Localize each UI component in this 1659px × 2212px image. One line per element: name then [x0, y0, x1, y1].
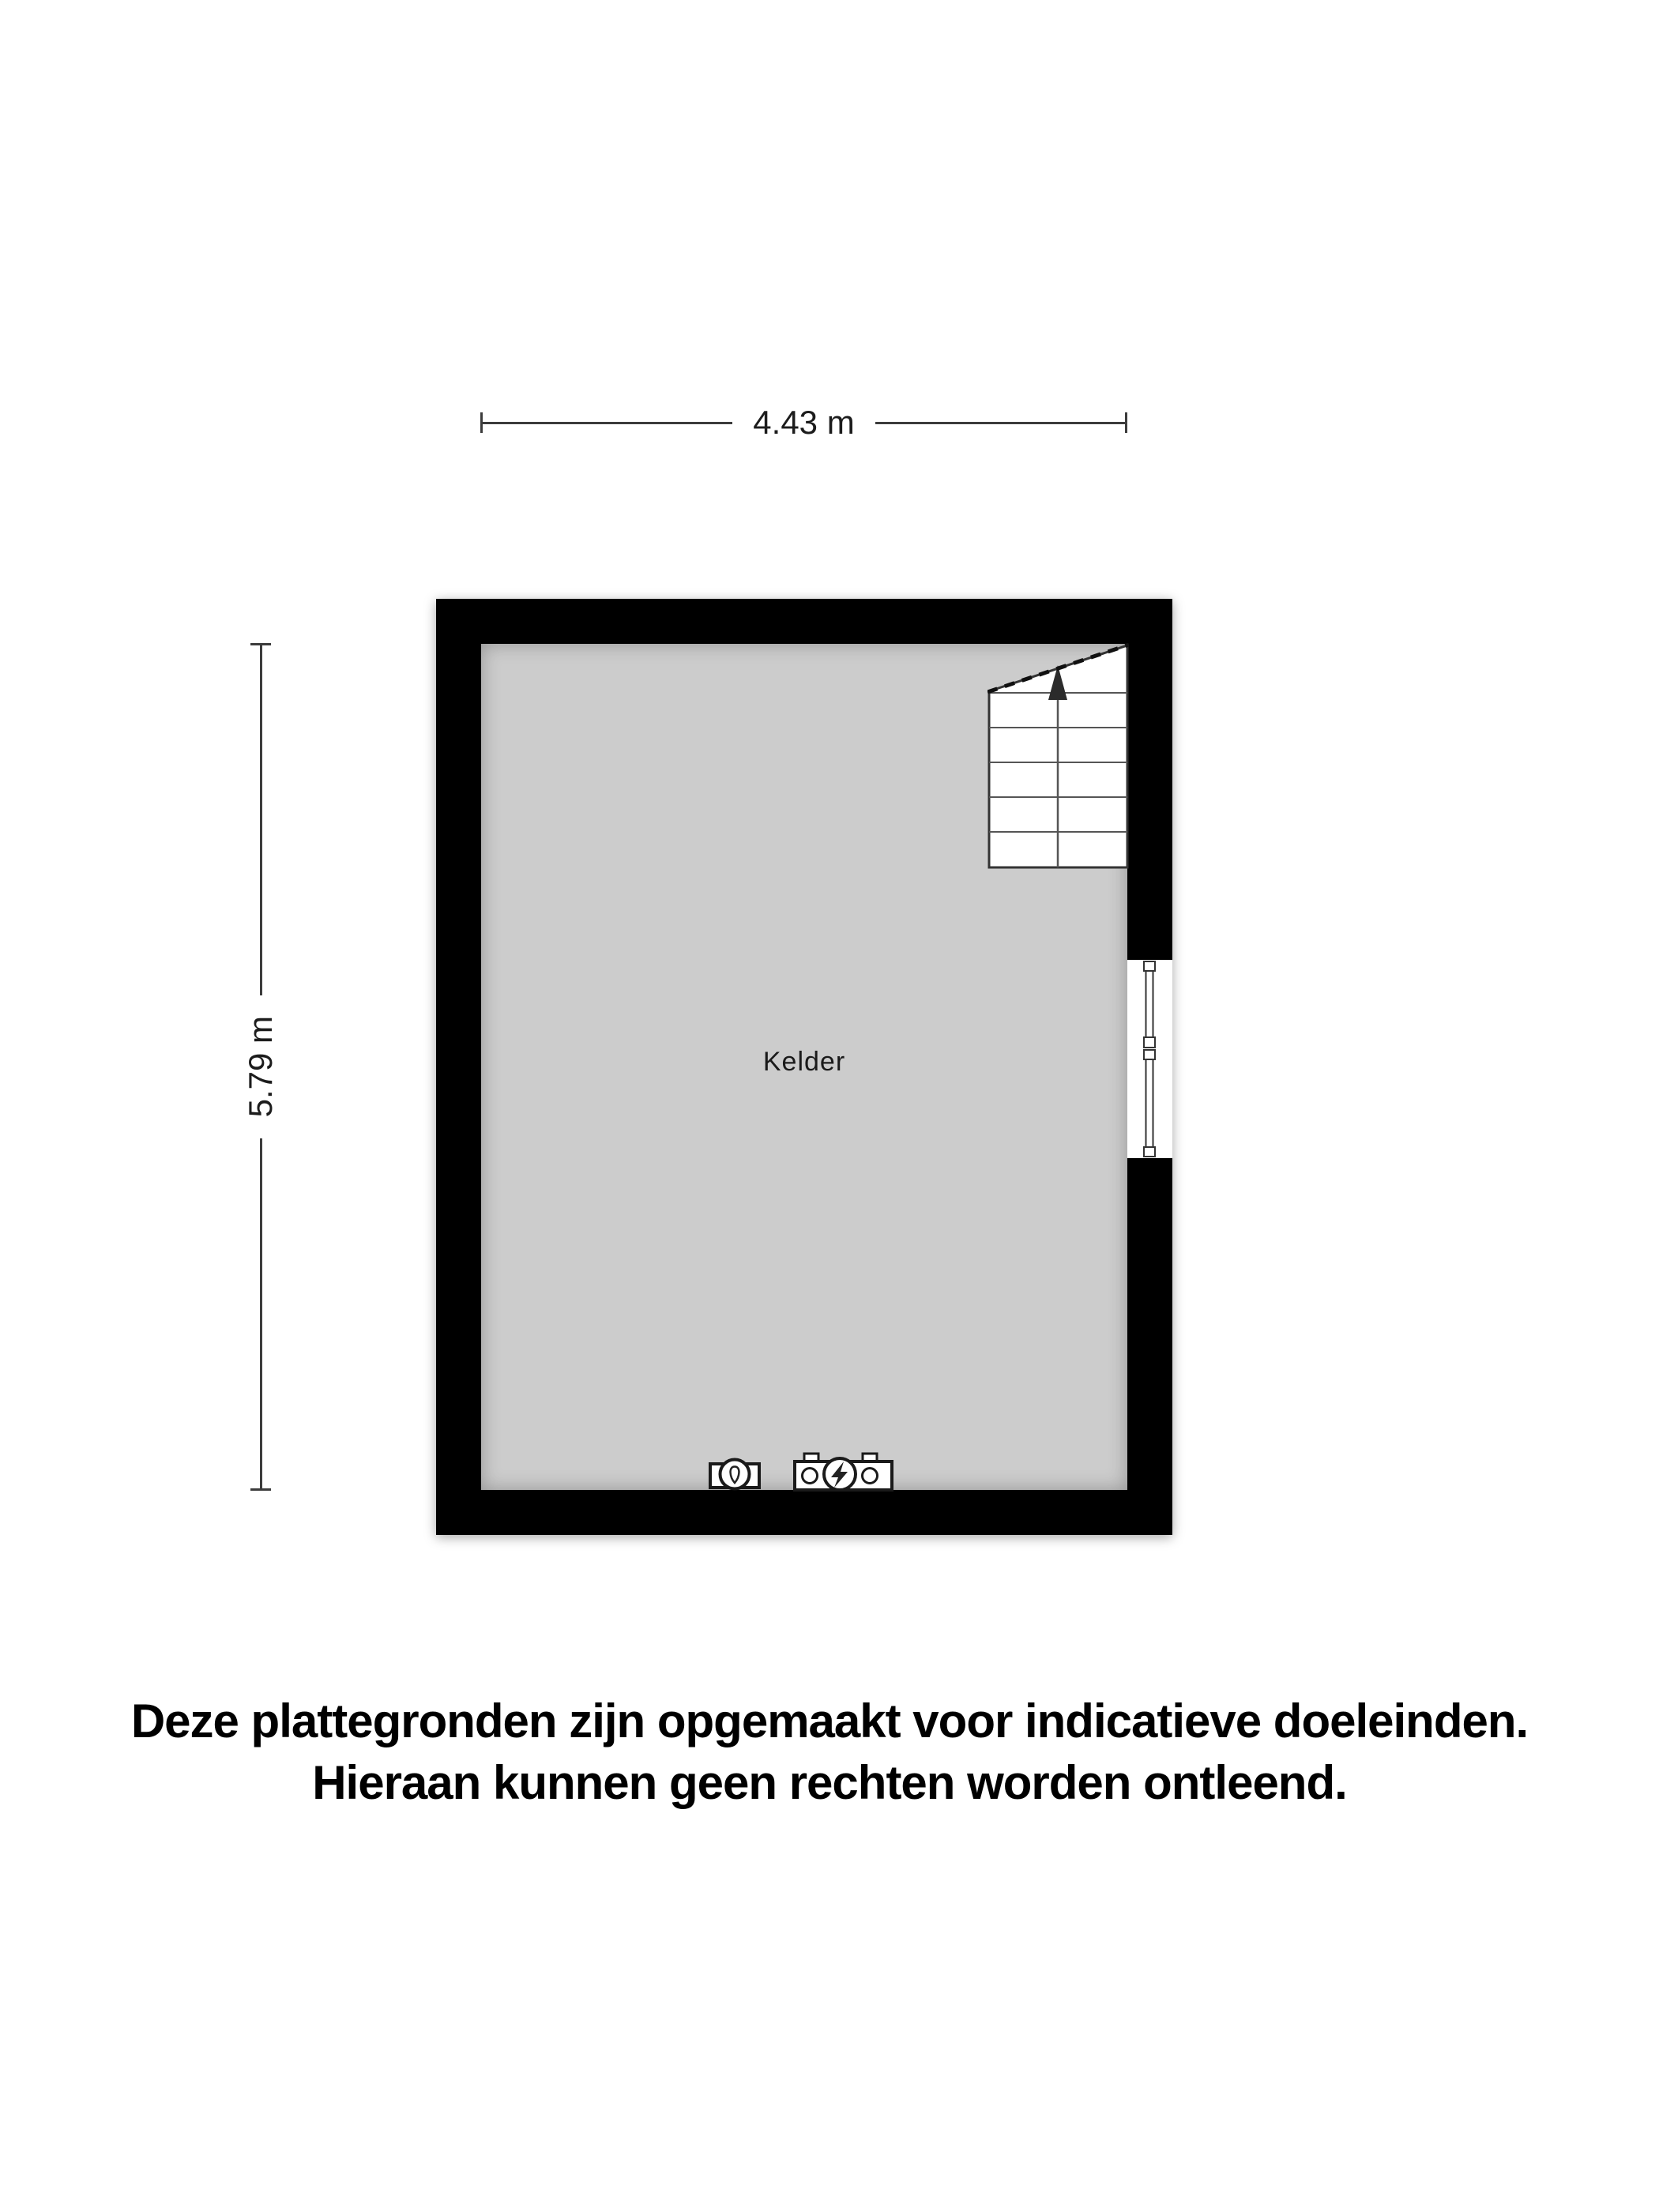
disclaimer-line-1: Deze plattegronden zijn opgemaakt voor i…: [0, 1691, 1659, 1752]
dimension-tick: [1125, 412, 1127, 433]
dimension-line: [875, 422, 1125, 424]
room-label: Kelder: [481, 1047, 1127, 1078]
dimension-tick: [250, 1488, 271, 1491]
dimension-line: [483, 422, 732, 424]
dimension-line: [260, 645, 262, 995]
basement-room: Kelder: [481, 644, 1127, 1490]
stairs-up-icon: [987, 643, 1129, 869]
height-dimension: 5.79 m: [250, 643, 271, 1491]
width-dimension-label: 4.43 m: [732, 404, 875, 442]
floorplan-page: { "floorplan": { "room_label": "Kelder",…: [0, 0, 1659, 2212]
height-dimension-label: 5.79 m: [242, 995, 280, 1138]
floorplan: Kelder: [436, 599, 1172, 1535]
disclaimer-line-2: Hieraan kunnen geen rechten worden ontle…: [0, 1752, 1659, 1814]
window-icon: [1127, 960, 1172, 1158]
water-meter-icon: [709, 1457, 761, 1491]
width-dimension: 4.43 m: [480, 412, 1127, 433]
disclaimer-text: Deze plattegronden zijn opgemaakt voor i…: [0, 1691, 1659, 1814]
dimension-line: [260, 1138, 262, 1488]
electricity-meter-icon: [793, 1451, 893, 1492]
